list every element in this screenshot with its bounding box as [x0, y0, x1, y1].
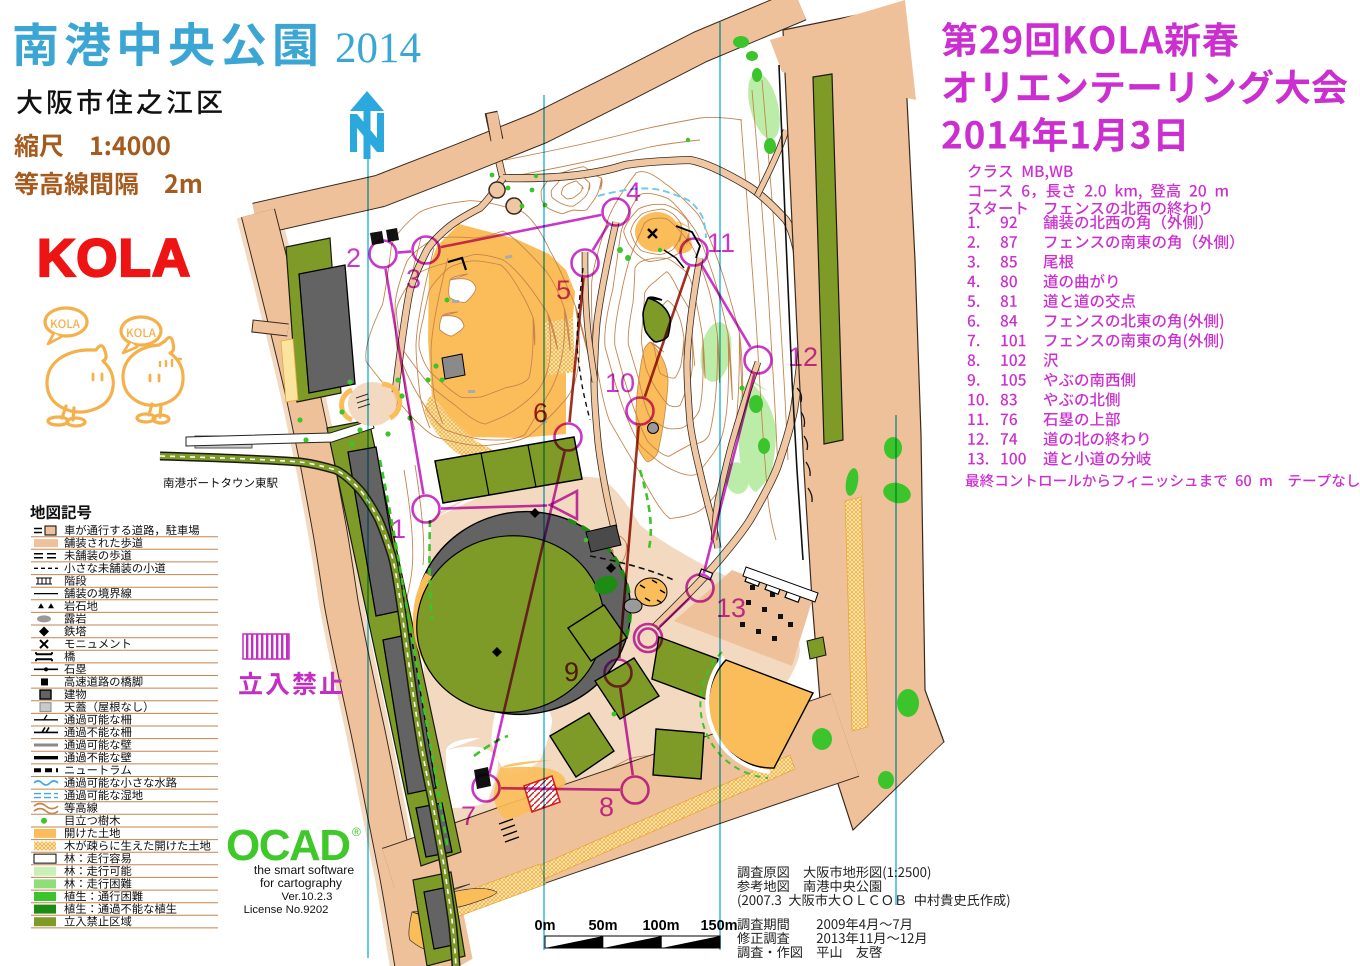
svg-text:for cartography: for cartography	[260, 876, 343, 890]
svg-text:11: 11	[707, 228, 735, 258]
svg-text:5: 5	[556, 275, 571, 305]
svg-text:0m: 0m	[535, 918, 556, 934]
svg-text:100m: 100m	[642, 918, 679, 934]
svg-text:10: 10	[605, 368, 635, 398]
svg-text:13: 13	[716, 593, 746, 623]
svg-text:2014: 2014	[335, 25, 421, 72]
svg-text:3: 3	[406, 264, 421, 294]
svg-text:50m: 50m	[588, 918, 617, 934]
svg-text:1: 1	[391, 514, 406, 544]
svg-text:KOLA: KOLA	[37, 229, 191, 288]
svg-text:6: 6	[533, 398, 548, 428]
svg-text:12: 12	[788, 342, 818, 372]
svg-text:the smart software: the smart software	[254, 863, 354, 877]
svg-text:2: 2	[346, 243, 361, 273]
svg-text:9: 9	[564, 657, 579, 687]
svg-text:150m: 150m	[700, 918, 737, 934]
svg-text:8: 8	[599, 792, 614, 822]
svg-text:License No.9202: License No.9202	[244, 904, 329, 916]
svg-text:Ver.10.2.3: Ver.10.2.3	[282, 891, 333, 903]
svg-text:4: 4	[626, 177, 641, 207]
svg-text:®: ®	[352, 825, 361, 839]
svg-text:7: 7	[461, 801, 476, 831]
